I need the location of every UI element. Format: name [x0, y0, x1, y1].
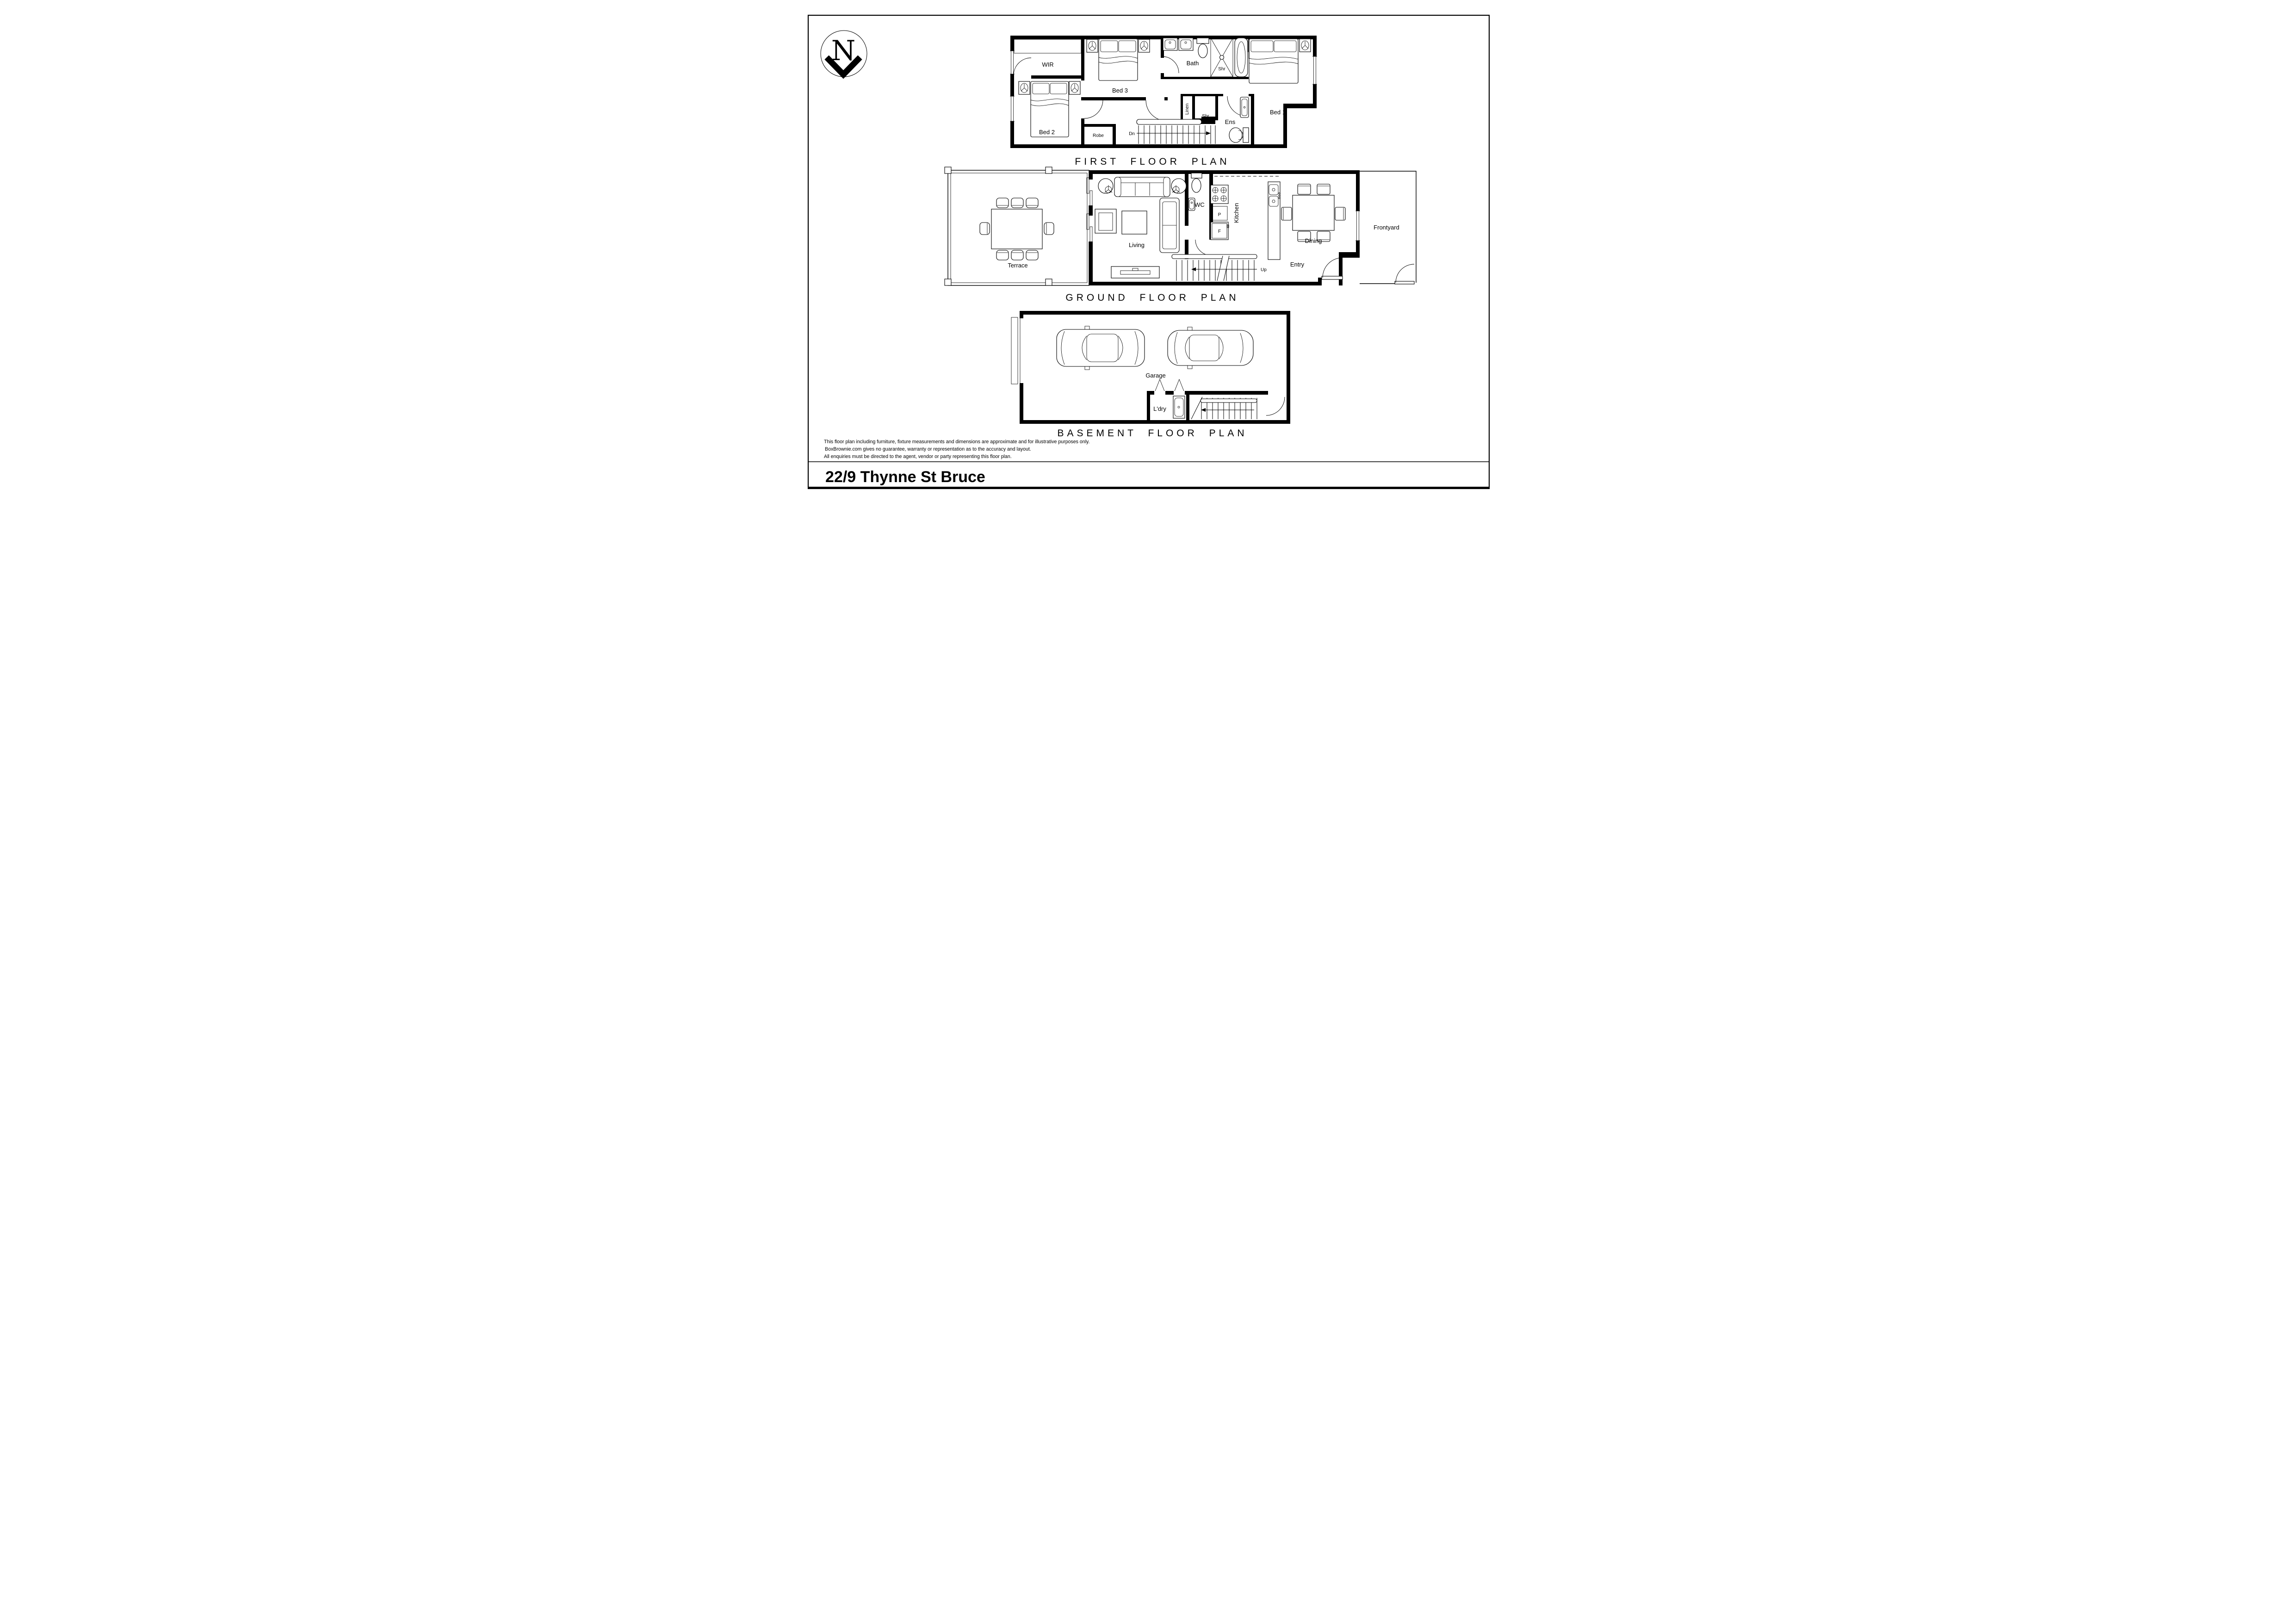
tv-unit-icon — [1111, 266, 1159, 278]
laundry-fixtures — [1154, 379, 1185, 418]
sink-icon — [1240, 97, 1249, 118]
armchair-icon — [1095, 209, 1116, 233]
first-floor-plan: WIR Bed 3 Bath Shr Bed 1 Bed 2 Robe Dn L… — [1010, 36, 1317, 167]
room-label-ldry: L'dry — [1153, 405, 1166, 412]
disclaimer-line-2: BoxBrownie.com gives no guarantee, warra… — [825, 446, 1031, 452]
chaise-sofa-icon — [1160, 198, 1179, 253]
room-label-living: Living — [1129, 242, 1145, 248]
toilet-icon — [1229, 128, 1249, 142]
stove-icon — [1211, 185, 1228, 204]
north-indicator-icon: N — [821, 31, 867, 77]
room-label-fridge: F — [1218, 229, 1220, 234]
toilet-icon — [1191, 173, 1202, 192]
room-label-robe: Robe — [1093, 133, 1104, 138]
staircase — [1191, 397, 1285, 419]
room-label-shr2: Shr — [1202, 114, 1209, 119]
room-label-dining: Dining — [1305, 237, 1322, 244]
basement-floor-plan: Garage L'dry BASEMENT FLOOR PLAN — [1011, 311, 1290, 439]
room-label-garage: Garage — [1145, 372, 1165, 379]
room-label-frontyard: Frontyard — [1374, 224, 1399, 231]
room-label-wir: WIR — [1042, 61, 1053, 68]
outdoor-table-icon — [980, 198, 1054, 260]
room-label-bed2: Bed 2 — [1039, 129, 1055, 136]
wardrobe-icon — [1014, 39, 1081, 53]
stair-label-dn: Dn — [1129, 131, 1135, 136]
coffee-table-icon — [1122, 211, 1147, 234]
car-icon — [1057, 326, 1145, 370]
stair-label-up: Up — [1261, 267, 1267, 273]
dining-table-icon — [1281, 184, 1345, 242]
disclaimer-line-1: This floor plan including furniture, fix… — [824, 439, 1090, 445]
plan-title-ground: GROUND FLOOR PLAN — [1065, 292, 1239, 303]
staircase — [1172, 254, 1257, 281]
laundry-tub-icon — [1173, 396, 1185, 418]
toilet-icon — [1197, 38, 1209, 58]
room-label-terrace: Terrace — [1008, 262, 1027, 269]
room-label-pantry: P — [1218, 212, 1221, 217]
disclaimer-line-3: All enquiries must be directed to the ag… — [824, 454, 1012, 459]
door-arc — [1195, 240, 1211, 255]
room-label-bed1: Bed 1 — [1270, 109, 1286, 116]
bed-icon — [1237, 39, 1311, 83]
property-address-title: 22/9 Thynne St Bruce — [825, 468, 985, 486]
plan-title-first: FIRST FLOOR PLAN — [1075, 156, 1230, 167]
room-label-linen: Linen — [1185, 104, 1190, 115]
window — [1355, 211, 1360, 241]
plan-title-basement: BASEMENT FLOOR PLAN — [1057, 428, 1247, 439]
sofa-icon — [1114, 177, 1170, 197]
garage-door — [1011, 317, 1024, 384]
island-bench-sink-icon — [1268, 182, 1280, 260]
floorplan-page: N — [791, 0, 1506, 506]
room-label-bed3: Bed 3 — [1112, 87, 1128, 94]
vanity-sinks-icon — [1163, 38, 1193, 50]
ground-floor-plan: Terrace Living WC P F Kitchen Dining Ent… — [945, 167, 1416, 303]
room-label-kitchen: Kitchen — [1233, 203, 1240, 223]
room-label-ens: Ens — [1225, 118, 1235, 125]
footer: This floor plan including furniture, fix… — [824, 439, 1090, 486]
car-icon — [1168, 327, 1253, 369]
room-label-shr: Shr — [1218, 67, 1225, 72]
sink-icon — [1188, 198, 1195, 211]
room-label-bath: Bath — [1186, 60, 1199, 67]
room-label-entry: Entry — [1290, 261, 1304, 268]
bathtub-icon — [1235, 38, 1248, 77]
kitchen-fixtures — [1211, 176, 1280, 260]
room-label-wc: WC — [1194, 201, 1205, 208]
bed-icon — [1087, 39, 1150, 81]
